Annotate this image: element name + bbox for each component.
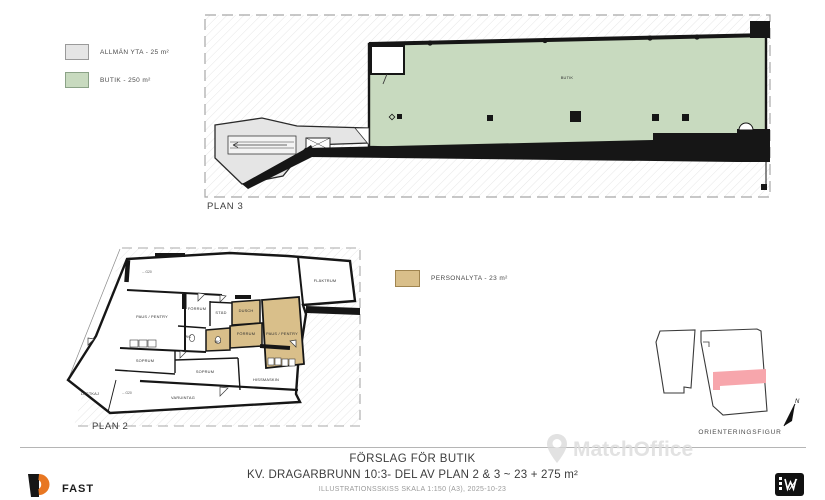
room-label-pauspentry-2: PAUS / PENTRY <box>266 331 298 336</box>
sheet-title: FÖRSLAG FÖR BUTIK <box>0 453 825 465</box>
corner-logo <box>774 472 806 498</box>
north-label: N <box>795 399 800 405</box>
fast-logo-p-icon <box>28 474 50 497</box>
room-label-varuintag: VARUINTAG <box>171 395 195 400</box>
legend-label-personalyta: PERSONALYTA - 23 m² <box>431 275 508 282</box>
plan3-edge-square <box>761 184 767 190</box>
room-label-forrum-1: FÖRRUM <box>188 306 206 311</box>
legend-item-allman: ALLMÄN YTA - 25 m² <box>65 44 169 60</box>
room-label-forrum-2: FÖRRUM <box>237 331 255 336</box>
room-label-soprum-2: SOPRUM <box>196 369 214 374</box>
legend-item-personalyta: PERSONALYTA - 23 m² <box>395 270 508 287</box>
plan3-topright-block <box>750 21 770 38</box>
plan3-corner-block <box>737 129 770 162</box>
plan3-caption: PLAN 3 <box>207 201 243 212</box>
legend-label-allman: ALLMÄN YTA - 25 m² <box>100 49 169 56</box>
orientation-figure: N <box>645 322 805 434</box>
stair-symbol <box>228 136 296 154</box>
legend-label-butik: BUTIK - 250 m² <box>100 77 151 84</box>
fast-logo: FAST <box>26 472 126 500</box>
fast-logo-text: FAST <box>62 483 94 495</box>
drawing-sheet: ALLMÄN YTA - 25 m² BUTIK - 250 m² <box>0 0 825 500</box>
legend-item-butik: BUTIK - 250 m² <box>65 72 151 88</box>
plan3-drawing: BUTIK <box>200 8 780 208</box>
door-label-2: ←G20 <box>122 391 132 395</box>
legend-swatch-personalyta <box>395 270 420 287</box>
room-label-wc-1: WC <box>185 334 192 339</box>
room-label-flaktrum: FLÄKTRUM <box>314 278 337 283</box>
orientation-building-left <box>656 330 695 393</box>
legend-swatch-butik <box>65 72 89 88</box>
plan2-drawing: FLÄKTRUM PAUS / PENTRY FÖRRUM STÄD DUSCH… <box>60 242 370 434</box>
room-label-pauspentry-1: PAUS / PENTRY <box>136 314 168 319</box>
room-label-stad: STÄD <box>215 310 226 315</box>
legend-swatch-allman <box>65 44 89 60</box>
door-label-1: ←G20 <box>142 270 152 274</box>
room-label-hissmaskin: HISSMASKIN <box>253 377 279 382</box>
room-label-dusch: DUSCH <box>239 308 254 313</box>
plan2-caption: PLAN 2 <box>92 421 128 432</box>
room-label-soprum-1: SOPRUM <box>136 358 154 363</box>
room-label-butik: BUTIK <box>561 75 574 80</box>
north-arrow-icon: N <box>784 399 800 426</box>
room-label-lastkaj: LASTKAJ <box>81 391 99 396</box>
room-label-wc-2: WC <box>215 339 222 344</box>
